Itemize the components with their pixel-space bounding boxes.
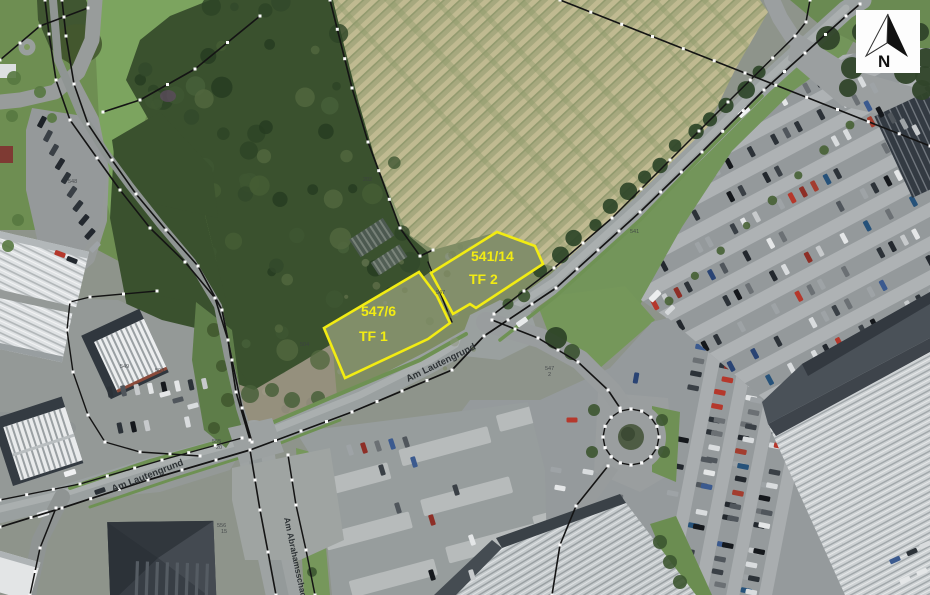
svg-text:TF 1: TF 1 [359, 328, 388, 344]
svg-text:549: 549 [120, 364, 129, 370]
svg-text:202: 202 [363, 177, 372, 183]
svg-text:504: 504 [300, 342, 309, 348]
svg-text:N: N [878, 52, 890, 71]
svg-text:541: 541 [630, 229, 639, 235]
svg-text:20: 20 [216, 445, 222, 451]
svg-text:541/14: 541/14 [471, 248, 514, 264]
svg-text:15: 15 [221, 529, 227, 535]
svg-text:547: 547 [436, 290, 445, 296]
svg-text:548: 548 [68, 179, 77, 185]
svg-text:503: 503 [155, 368, 164, 374]
svg-text:TF 2: TF 2 [469, 271, 498, 287]
svg-text:2: 2 [548, 372, 551, 378]
svg-text:547/6: 547/6 [361, 303, 396, 319]
